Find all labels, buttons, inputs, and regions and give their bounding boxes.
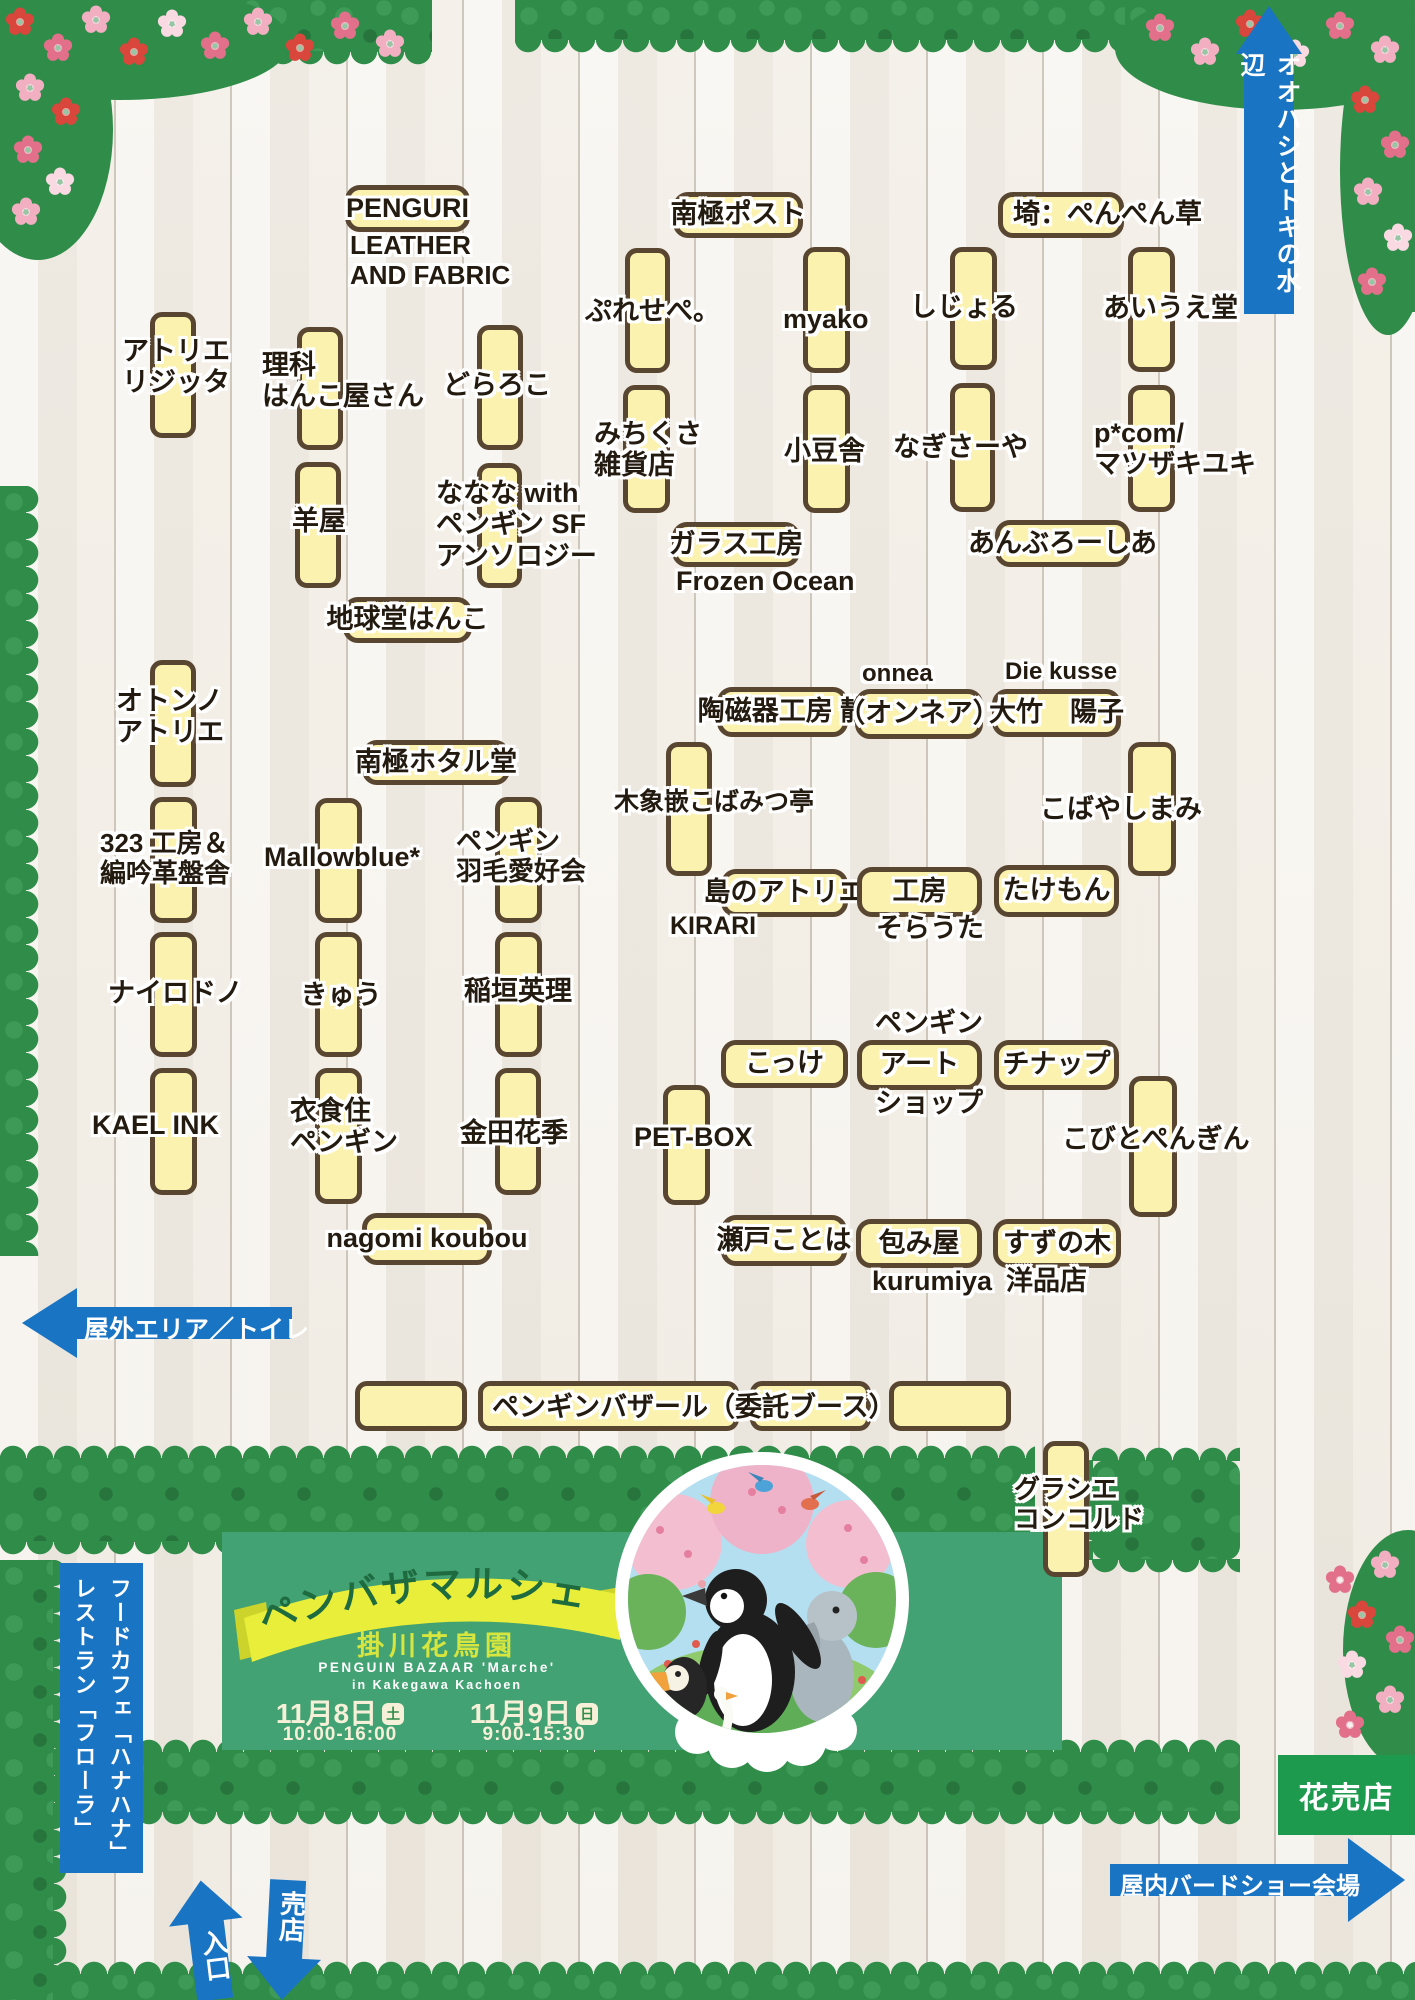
label-box: 大竹 陽子 xyxy=(992,689,1121,737)
booth-label: オトンノ アトリエ xyxy=(116,686,234,749)
booth-label: LEATHER AND FABRIC xyxy=(350,230,520,290)
booth-label: グラシエ コンコルド xyxy=(1014,1474,1164,1534)
label-box: アート xyxy=(857,1040,982,1090)
booth-label: 金田花季 xyxy=(460,1118,568,1149)
waterside-banner-label: オオハシとトキの水辺 xyxy=(1233,52,1305,314)
label-box-text: 工房 xyxy=(893,876,947,907)
booth-label: こばやしまみ xyxy=(1040,794,1202,825)
flower-shop-sign: 花売店 xyxy=(1278,1755,1415,1835)
label-box: 瀬戸ことは xyxy=(721,1215,847,1266)
booth-label: ペンギン 羽毛愛好会 xyxy=(456,826,598,886)
label-box-text: 南極ホタル堂 xyxy=(355,747,517,778)
label-box: 地球堂はんこ xyxy=(343,597,472,643)
booth-label: アトリエ リジッタ xyxy=(122,336,240,399)
label-box: 包み屋 xyxy=(856,1219,982,1268)
label-box: 南極ポスト xyxy=(673,192,803,238)
label-box: チナップ xyxy=(994,1040,1119,1090)
banner-venue: 掛川花鳥園 xyxy=(222,1624,652,1663)
label-box-text: こっけ xyxy=(745,1048,824,1079)
label-box: ガラス工房 xyxy=(672,522,800,567)
booth-label: ぷれせぺ。 xyxy=(585,296,720,327)
label-box: 工房 xyxy=(857,867,982,917)
label-box: こっけ xyxy=(721,1040,848,1088)
booth-label: ペンギン xyxy=(874,1008,984,1039)
booth-label: PET-BOX xyxy=(634,1122,753,1153)
up-arrow-icon xyxy=(1236,6,1302,54)
booth-label: ペンギンバザール（委託ブース） xyxy=(492,1392,896,1423)
hedge-top-middle xyxy=(515,0,1125,40)
label-box-text: 瀬戸ことは xyxy=(717,1225,852,1256)
label-box-text: チナップ xyxy=(1003,1049,1111,1080)
label-box: 島のアトリエ xyxy=(721,869,848,917)
booth-label: kurumiya xyxy=(872,1266,992,1297)
banner-subtitle-en: PENGUIN BAZAAR 'Marche' xyxy=(222,1660,652,1675)
booth xyxy=(889,1381,1011,1431)
label-box-text: すずの木 xyxy=(1003,1228,1111,1259)
banner-times: 10:00-16:00 9:00-15:30 xyxy=(222,1724,652,1746)
banner-day-1: 土 xyxy=(382,1703,404,1725)
booth-label: ショップ xyxy=(874,1088,984,1119)
label-box-text: ガラス工房 xyxy=(669,529,803,560)
label-box-text: 大竹 陽子 xyxy=(989,697,1124,728)
shop-arrow: 売店 xyxy=(245,1878,325,2000)
hedge-bottom-left-strip xyxy=(0,1560,54,2000)
booth-label: ななな with ペンギン SF アンソロジー xyxy=(436,478,611,572)
banner-day-2: 日 xyxy=(576,1703,598,1725)
hedge-top-left xyxy=(0,0,432,52)
label-box-text: 包み屋 xyxy=(879,1228,960,1259)
booth-label: 理科 はんこ屋さん xyxy=(262,350,442,413)
label-box-text: PENGURI xyxy=(346,193,469,224)
label-box: あんぶろーしあ xyxy=(995,520,1130,567)
booth-label: ナイロドノ xyxy=(108,978,242,1009)
booth-label: 323 工房＆ 編吟革盤舎 xyxy=(100,828,250,888)
booth-label: 洋品店 xyxy=(1006,1266,1087,1297)
label-box-text: アート xyxy=(880,1049,959,1080)
label-box: 埼：ぺんぺん草 xyxy=(998,192,1124,238)
birdshow-label: 屋内バードショー会場 xyxy=(1120,1866,1360,1901)
booth-label: Mallowblue* xyxy=(264,842,420,873)
penguin-badge-illustration xyxy=(612,1444,912,1774)
booth-label: onnea xyxy=(862,660,933,688)
label-box-text: 地球堂はんこ xyxy=(327,604,489,635)
waterside-arrow xyxy=(1236,6,1302,54)
booth-label: みちくさ 雑貨店 xyxy=(594,419,706,482)
booth-label: きゅう xyxy=(298,980,384,1011)
label-box-text: 島のアトリエ xyxy=(704,877,866,908)
hedge-right-strip xyxy=(1389,52,1415,312)
outdoor-area-label: 屋外エリア／トイレ xyxy=(84,1310,309,1346)
banner-subtitle-en2: in Kakegawa Kachoen xyxy=(222,1678,652,1692)
hedge-left-strip xyxy=(0,486,26,1256)
booth-label: 小豆舎 xyxy=(784,436,865,467)
entrance-label: 入口 xyxy=(194,1927,237,1983)
booth xyxy=(355,1381,467,1431)
booth-label: 羊屋 xyxy=(288,506,350,537)
birdshow-arrow: 屋内バードショー会場 xyxy=(1110,1838,1405,1922)
label-box-text: たけもん xyxy=(1003,875,1111,906)
entrance-arrow: 入口 xyxy=(164,1876,252,2000)
booth-label: どらろこ xyxy=(443,370,551,401)
booth-label: 衣食住 ペンギン xyxy=(290,1096,410,1159)
label-box: すずの木 xyxy=(993,1219,1121,1268)
label-box: PENGURI xyxy=(345,185,470,232)
label-box-text: 埼：ぺんぺん草 xyxy=(1013,199,1202,230)
label-box-text: （オンネア） xyxy=(838,698,999,729)
label-box: 南極ホタル堂 xyxy=(362,740,510,785)
booth-label: Frozen Ocean xyxy=(676,566,855,597)
booth-label: KAEL INK xyxy=(92,1110,219,1141)
label-box-text: 南極ポスト xyxy=(671,199,806,230)
label-box: nagomi koubou xyxy=(362,1213,492,1265)
booth-label: なぎさーや xyxy=(893,432,1028,463)
booth-label: KIRARI xyxy=(670,912,756,941)
restaurant-line2: フードカフェ「ハナハナ」 xyxy=(102,1577,137,1873)
restaurant-line1: レストラン「フローラ」 xyxy=(66,1577,101,1873)
restaurant-sign: レストラン「フローラ」 フードカフェ「ハナハナ」 xyxy=(60,1563,143,1873)
waterside-banner: オオハシとトキの水辺 xyxy=(1244,52,1294,314)
booth-label: あいうえ堂 xyxy=(1103,293,1238,324)
banner-time-1: 10:00-16:00 xyxy=(255,1724,425,1746)
label-box-text: nagomi koubou xyxy=(327,1223,528,1254)
booth-label: しじょる xyxy=(910,292,1018,323)
booth-label: 木象嵌こばみつ亭 xyxy=(614,788,814,817)
booth-label: myako xyxy=(783,304,869,335)
shop-label: 売店 xyxy=(272,1889,312,1943)
booth-label: そらうた xyxy=(876,913,984,944)
label-box-text: あんぶろーしあ xyxy=(968,528,1157,559)
booth-label: Die kusse xyxy=(1005,658,1117,686)
banner-time-2: 9:00-15:30 xyxy=(449,1724,619,1746)
map-canvas: ペンバザマルシェ 掛川花鳥園 PENGUIN BAZAAR 'Marche' i… xyxy=(0,0,1415,2000)
label-box: 陶磁器工房 静 xyxy=(717,687,848,737)
booth-label: p*com/ マツザキユキ xyxy=(1094,418,1264,481)
booth-label: 稲垣英理 xyxy=(464,976,572,1007)
outdoor-area-arrow: 屋外エリア／トイレ xyxy=(22,1288,292,1358)
booth-label: こびとぺんぎん xyxy=(1062,1124,1250,1155)
label-box: （オンネア） xyxy=(855,689,983,739)
label-box: たけもん xyxy=(994,865,1119,917)
